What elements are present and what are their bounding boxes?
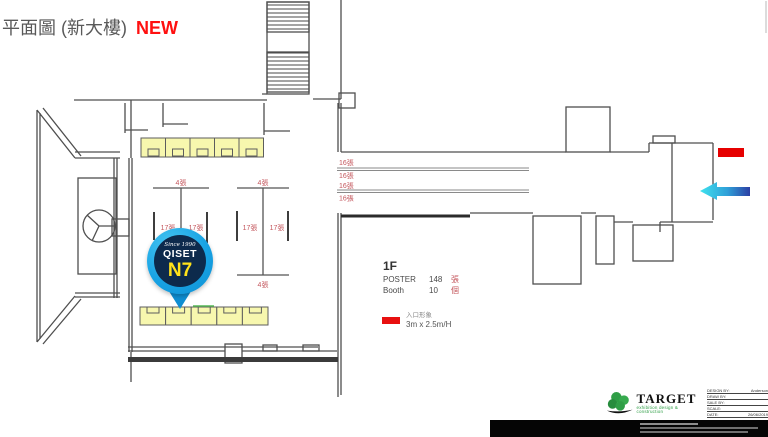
floor-info: 1F POSTER 148 張 Booth 10 個 — [383, 259, 459, 297]
legend-entrance-label: 入口形象 — [406, 312, 451, 320]
island2-left-label: 17張 — [243, 224, 258, 232]
booth-count-row: Booth 10 個 — [383, 286, 459, 297]
bottom-wall-band — [128, 357, 338, 362]
pin-circle: Since 1990 QISET N7 — [147, 228, 213, 294]
entrance-arrow-icon — [700, 182, 750, 200]
corridor-label-1: 16張 — [339, 159, 354, 167]
table-label: DATE: — [707, 412, 718, 417]
table-label: DESIGN BY: — [707, 388, 730, 393]
clover-logo-icon — [604, 389, 635, 417]
booth-location-pin: Since 1990 QISET N7 — [147, 228, 213, 309]
drawing-title-table: DESIGN BY:Anderson DRAW BY: SALE BY: SCA… — [707, 388, 768, 418]
booth-count: 10 — [429, 286, 451, 297]
island1-top-label: 4張 — [176, 179, 187, 187]
entrance-marker — [718, 148, 744, 157]
corridor-poster-walls — [337, 168, 529, 193]
poster-unit: 張 — [451, 275, 459, 286]
corridor-label-3: 16張 — [339, 182, 354, 190]
company-tagline: exhibition design & construction — [637, 406, 703, 415]
island2-top-label: 4張 — [258, 179, 269, 187]
corridor-label-4: 16張 — [339, 195, 354, 203]
table-label: SALE BY: — [707, 400, 725, 405]
booth-row-bottom — [140, 307, 268, 325]
legend: 入口形象 3m x 2.5m/H — [382, 312, 451, 329]
legend-entrance-size: 3m x 2.5m/H — [406, 320, 451, 330]
slide: 4張 17張 17張 4張 17張 17張 4張 16張 16張 16張 16張… — [0, 0, 768, 437]
table-label: SCALE: — [707, 406, 721, 411]
pin-brand-logo: QISET — [163, 249, 197, 260]
fine-print — [640, 423, 758, 435]
island2-right-label: 17張 — [270, 224, 285, 232]
floor-plan: 4張 17張 17張 4張 17張 17張 4張 16張 16張 16張 16張 — [0, 0, 768, 437]
poster-label: POSTER — [383, 275, 429, 286]
company-logo-block: TARGET exhibition design & construction … — [604, 387, 768, 419]
island2-bottom-label: 4張 — [258, 281, 269, 289]
floor-label: 1F — [383, 259, 459, 273]
pin-booth-number: N7 — [168, 261, 192, 280]
table-value: Anderson — [751, 388, 768, 393]
table-label: DRAW BY: — [707, 394, 726, 399]
company-name: TARGET — [637, 392, 703, 405]
booth-unit: 個 — [451, 286, 459, 297]
booth-label: Booth — [383, 286, 429, 297]
booth-row-top — [141, 138, 264, 157]
corridor-label-2: 16張 — [339, 172, 354, 180]
poster-count-row: POSTER 148 張 — [383, 275, 459, 286]
poster-count: 148 — [429, 275, 451, 286]
building-walls — [37, 0, 766, 397]
footer-disclaimer-bar — [490, 420, 768, 437]
legend-entrance-swatch — [382, 317, 400, 324]
table-value: 26/06/2019 — [748, 412, 768, 417]
